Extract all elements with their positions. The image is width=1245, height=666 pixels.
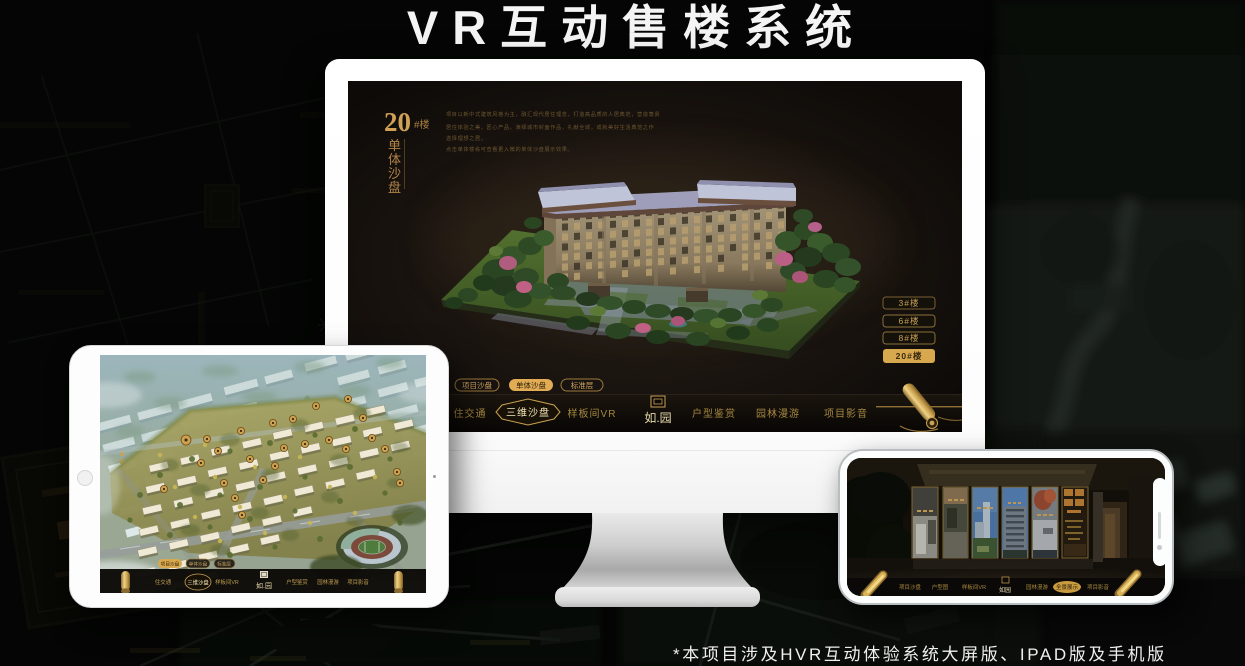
- svg-text:沙: 沙: [388, 166, 401, 181]
- svg-text:项目影音: 项目影音: [1087, 583, 1110, 591]
- svg-text:住交通: 住交通: [155, 578, 172, 586]
- svg-text:三维沙盘: 三维沙盘: [187, 579, 209, 587]
- svg-text:如.园: 如.园: [256, 581, 272, 590]
- svg-text:点击单体楼栋可查看更入微的单体沙盘展示效果。: 点击单体楼栋可查看更入微的单体沙盘展示效果。: [446, 145, 573, 153]
- svg-text:20: 20: [384, 107, 411, 137]
- svg-text:单体沙盘: 单体沙盘: [189, 561, 208, 568]
- svg-text:户型图: 户型图: [932, 583, 949, 591]
- svg-text:居住体验之美，匠心产品，演绎城市封面作品，礼献全城，成就美好: 居住体验之美，匠心产品，演绎城市封面作品，礼献全城，成就美好生活典范之作: [446, 123, 654, 131]
- svg-text:项目沙盘: 项目沙盘: [462, 380, 492, 390]
- svg-text:园林漫游: 园林漫游: [756, 407, 800, 420]
- svg-text:选择理想之居。: 选择理想之居。: [446, 134, 487, 142]
- svg-text:标准层: 标准层: [571, 380, 594, 390]
- svg-text:项目以新中式建筑风格为主，融汇现代居住理念，打造高品质的人居: 项目以新中式建筑风格为主，融汇现代居住理念，打造高品质的人居典范，营造尊贵: [446, 110, 660, 118]
- svg-text:8#楼: 8#楼: [899, 333, 920, 343]
- svg-text:项目影音: 项目影音: [824, 407, 868, 420]
- svg-text:户型鉴赏: 户型鉴赏: [692, 407, 736, 420]
- svg-text:户型鉴赏: 户型鉴赏: [286, 578, 308, 586]
- svg-text:项目沙盘: 项目沙盘: [899, 583, 922, 591]
- svg-text:项目影音: 项目影音: [347, 578, 369, 586]
- svg-text:单体沙盘: 单体沙盘: [516, 380, 546, 390]
- svg-text:标准层: 标准层: [217, 561, 231, 568]
- svg-text:3#楼: 3#楼: [899, 298, 920, 308]
- svg-text:盘: 盘: [388, 180, 401, 195]
- svg-text:全景展示: 全景展示: [1056, 583, 1079, 591]
- svg-text:20#楼: 20#楼: [896, 351, 923, 361]
- svg-text:样板间VR: 样板间VR: [962, 583, 986, 591]
- svg-text:三维沙盘: 三维沙盘: [506, 406, 550, 419]
- svg-text:住交通: 住交通: [454, 407, 487, 420]
- svg-text:项目沙盘: 项目沙盘: [161, 561, 180, 568]
- svg-text:单: 单: [388, 138, 401, 153]
- svg-text:样板间VR: 样板间VR: [215, 578, 239, 586]
- svg-text:如.园: 如.园: [644, 410, 671, 425]
- svg-text:#楼: #楼: [414, 118, 430, 131]
- svg-text:体: 体: [388, 152, 401, 167]
- svg-text:园林漫游: 园林漫游: [1026, 583, 1049, 591]
- svg-text:园林漫游: 园林漫游: [317, 578, 339, 586]
- svg-text:6#楼: 6#楼: [899, 316, 920, 326]
- svg-text:样板间VR: 样板间VR: [568, 407, 617, 420]
- svg-text:如园: 如园: [999, 586, 1011, 594]
